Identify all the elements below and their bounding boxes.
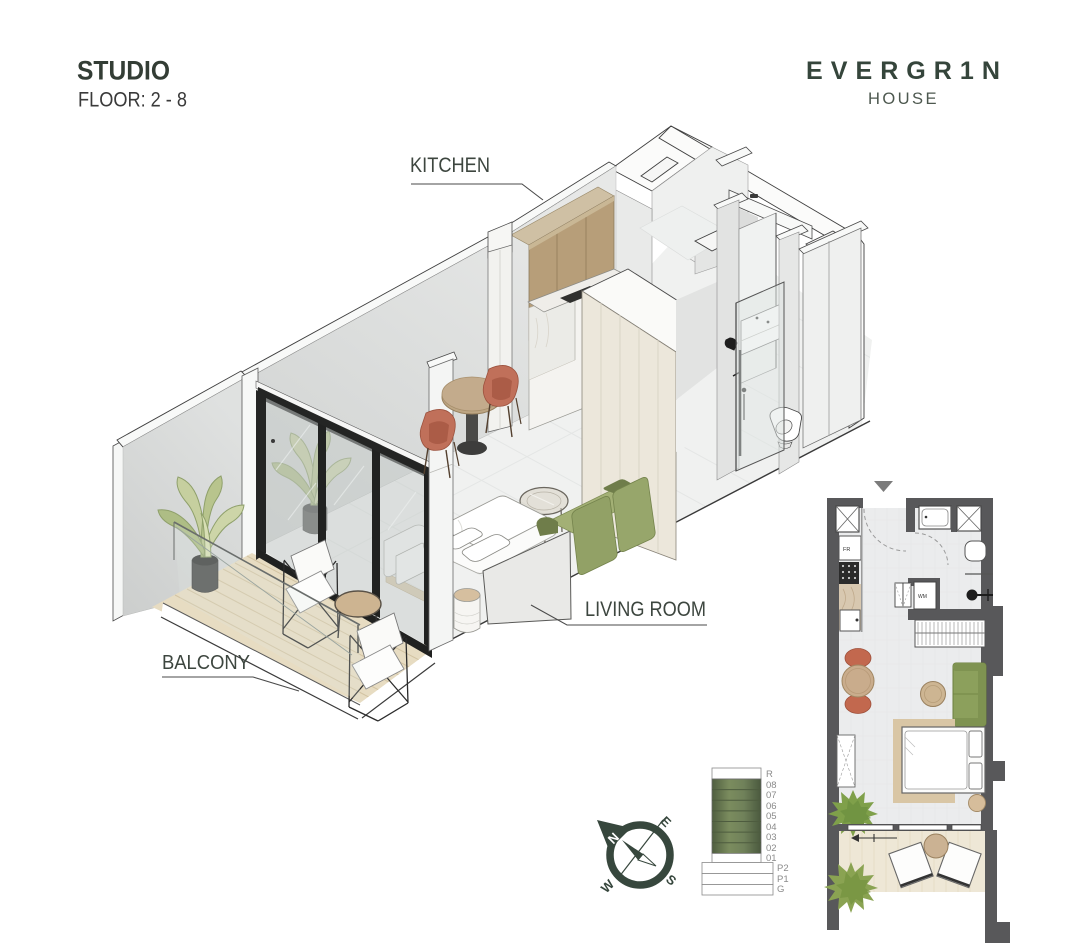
svg-text:R: R [766,769,773,780]
svg-text:HOUSE: HOUSE [868,89,939,108]
svg-text:E: E [658,813,675,830]
svg-text:FLOOR: 2 - 8: FLOOR: 2 - 8 [78,89,187,112]
svg-text:KITCHEN: KITCHEN [410,154,490,177]
svg-text:G: G [777,884,784,895]
svg-text:01: 01 [766,853,777,864]
svg-text:W: W [598,876,618,896]
svg-text:BALCONY: BALCONY [162,652,250,674]
svg-text:FR: FR [843,547,850,553]
svg-text:WM: WM [918,594,927,600]
svg-text:05: 05 [766,811,777,822]
svg-text:P2: P2 [777,863,789,874]
svg-text:EVERGR1N: EVERGR1N [806,57,1008,85]
svg-text:03: 03 [766,832,777,843]
svg-text:LIVING ROOM: LIVING ROOM [585,598,706,621]
svg-text:STUDIO: STUDIO [77,56,170,86]
svg-text:07: 07 [766,790,777,801]
